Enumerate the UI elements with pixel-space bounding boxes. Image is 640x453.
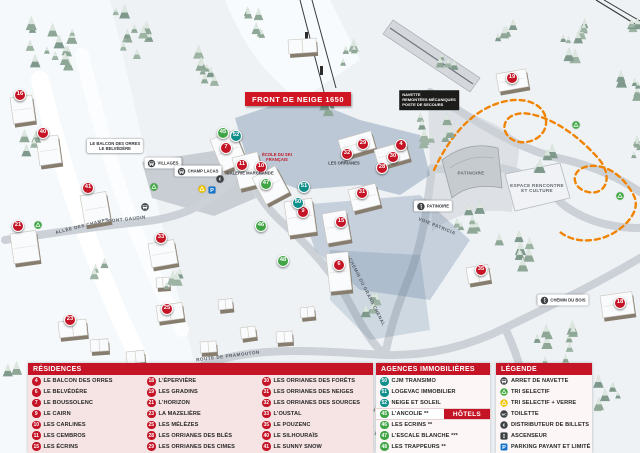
agences-hotels-panel: AGENCES IMMOBILIÈRES 50CJM TRANSIMO51LOG… (376, 363, 490, 453)
label-text: LE BALCON DES ORRESLE BELVÉDÈRE (90, 141, 140, 152)
item-label: LES MÉLÈZES (159, 422, 199, 428)
legend-item-10: 10LES CARLINES (28, 419, 143, 430)
marker-number: 41 (85, 185, 91, 191)
marker-number: 7 (224, 145, 227, 151)
map-marker-25[interactable]: 25 (161, 303, 173, 315)
item-label: LE POUZENC (274, 422, 311, 428)
item-label: TRI SELECTIF (511, 389, 550, 395)
map-marker-46[interactable]: 46 (255, 220, 267, 232)
ascenseur-icon (500, 432, 508, 440)
marker-number: 16 (17, 92, 23, 98)
navette-icon (500, 377, 508, 385)
item-label: PARKING PAYANT ET LIMITÉ (511, 444, 590, 450)
map-marker-23[interactable]: 23 (64, 314, 76, 326)
recycle-green-icon (150, 183, 158, 191)
label-text: CHAMP LACAS (188, 168, 219, 173)
marker-number: 32 (344, 151, 350, 157)
marker-number: 29 (360, 141, 366, 147)
number-badge: 9 (32, 410, 41, 419)
number-badge: 15 (32, 442, 41, 451)
item-label: LES ORRIANES DES NEIGES (274, 389, 354, 395)
label-text: CHEMIN DU BOIS (550, 297, 585, 302)
marker-number: 23 (67, 317, 73, 323)
map-label-chemin-du-bois: CHEMIN DU BOIS (537, 295, 588, 306)
marker-number: 21 (15, 223, 21, 229)
chalet-building (300, 306, 316, 321)
map-label-navette: NAVETTEREMONTÉES MÉCANIQUESPOSTE DE SECO… (399, 90, 459, 110)
map-marker-50[interactable]: 50 (292, 197, 304, 209)
map-marker-29[interactable]: 29 (357, 138, 369, 150)
marker-number: 52 (233, 133, 239, 139)
number-badge: 41 (262, 442, 271, 451)
recycle-green-icon (572, 121, 580, 129)
item-label: LES ORRIANES DES FORÊTS (274, 378, 356, 384)
map-marker-21[interactable]: 21 (12, 220, 24, 232)
marker-number: 30 (390, 154, 396, 160)
item-label: CJM TRANSIMO (392, 378, 436, 384)
number-badge: 47 (380, 431, 389, 440)
recycle-yellow-icon (198, 185, 206, 193)
item-label: LE CAIRN (44, 411, 71, 417)
legend-item-52: 52NEIGE ET SOLEIL (376, 398, 490, 409)
number-badge: 52 (380, 399, 389, 408)
number-badge: 11 (32, 431, 41, 440)
item-label: TRI SELECTIF + VERRE (511, 400, 576, 406)
recycle-green-icon (616, 192, 624, 200)
item-label: L'ESCALE BLANCHE *** (392, 433, 458, 439)
item-label: LES TRAPPEURS ** (392, 444, 446, 450)
legende-panel: LÉGENDE ARRET DE NAVETTETRI SELECTIFTRI … (496, 363, 592, 453)
legend-item-19: 19LES GRADINS (143, 387, 258, 398)
map-label-le-balcon-des-orres: LE BALCON DES ORRESLE BELVÉDÈRE (87, 139, 143, 153)
map-marker-18[interactable]: 18 (614, 297, 626, 309)
map-marker-35[interactable]: 35 (475, 264, 487, 276)
legend-item-7: 7LE BOUSSOLENC (28, 398, 143, 409)
map-marker-32[interactable]: 32 (341, 148, 353, 160)
marker-number: 10 (258, 164, 264, 170)
marker-number: 50 (295, 200, 301, 206)
marker-number: 18 (617, 300, 623, 306)
marker-number: 35 (478, 267, 484, 273)
label-text: PATINOIRE (427, 203, 449, 208)
residences-panel: RÉSIDENCES 4LE BALCON DES ORRES6LE BELVÉ… (28, 363, 373, 453)
marker-number: 51 (301, 184, 307, 190)
map-marker-52[interactable]: 52 (230, 130, 242, 142)
legend-item-18: 18L'ÉPERVIÈRE (143, 376, 258, 387)
marker-number: 15 (338, 219, 344, 225)
legend-item-41: 41LE SUNNY SNOW (258, 441, 373, 452)
legend-item-15: 15LES ÉCRINS (28, 441, 143, 452)
apartment-building (148, 239, 179, 271)
number-badge: 29 (147, 442, 156, 451)
skater-icon (417, 202, 425, 210)
bus-icon (141, 203, 149, 211)
item-label: LOGEVAC IMMOBILIER (392, 389, 456, 395)
resort-map-page: FRONT DE NEIGE 1650 16404121232533711109… (0, 0, 640, 453)
marker-number: 47 (263, 181, 269, 187)
map-label-les-orrianes: LES ORRIANES (328, 161, 359, 166)
legend-item-recycle-green: TRI SELECTIF (496, 387, 592, 398)
map-label-patinoire: PATINOIRE (414, 201, 452, 212)
map-marker-31[interactable]: 31 (356, 187, 368, 199)
legend-item-9: 9LE CAIRN (28, 409, 143, 420)
marker-number: 33 (158, 235, 164, 241)
number-badge: 33 (262, 410, 271, 419)
number-badge: 4 (32, 377, 41, 386)
marker-number: 19 (509, 75, 515, 81)
bus-icon (178, 167, 186, 175)
svg-text:P: P (210, 188, 214, 194)
apartment-building (10, 230, 41, 267)
map-marker-7[interactable]: 7 (220, 142, 232, 154)
map-label--cole-du-ski: ÉCOLE DU SKIFRANÇAIS (262, 152, 292, 162)
legend-item-50: 50CJM TRANSIMO (376, 376, 490, 387)
number-badge: 19 (147, 388, 156, 397)
map-label-champ-lacas: CHAMP LACAS (175, 166, 222, 177)
map-marker-4[interactable]: 4 (395, 139, 407, 151)
item-label: LES CARLINES (44, 422, 86, 428)
item-label: LES ECRINS ** (392, 422, 433, 428)
legend-item-29: 29LES ORRIANES DES CIMES (143, 441, 258, 452)
marker-number: 25 (164, 306, 170, 312)
map-marker-51[interactable]: 51 (298, 181, 310, 193)
label-text: ÉCOLE DU SKIFRANÇAIS (262, 152, 292, 162)
marker-number: 9 (301, 209, 304, 215)
item-label: LE BOUSSOLENC (44, 400, 93, 406)
legend-item-parking: PPARKING PAYANT ET LIMITÉ (496, 441, 592, 452)
legend-item-47: 47L'ESCALE BLANCHE *** (376, 430, 490, 441)
legend-item-45: 45L'ANCOLIE **HÔTELS (376, 409, 490, 420)
walk-icon (540, 296, 548, 304)
legend-item-35: 35LE POUZENC (258, 419, 373, 430)
number-badge: 35 (262, 421, 271, 430)
chalet-building (276, 331, 294, 347)
recycle-green-icon (34, 221, 42, 229)
number-badge: 18 (147, 377, 156, 386)
legend-item-33: 33L'OUSTAL (258, 409, 373, 420)
number-badge: 50 (380, 377, 389, 386)
legend-item-28: 28LES ORRIANES DES BLÉS (143, 430, 258, 441)
legend-item-navette: ARRET DE NAVETTE (496, 376, 592, 387)
legend-item-51: 51LOGEVAC IMMOBILIER (376, 387, 490, 398)
legende-header: LÉGENDE (496, 363, 592, 375)
legend-item-11: 11LES CEMBROS (28, 430, 143, 441)
item-label: LE BELVÉDÈRE (44, 389, 88, 395)
map-label-galerie-marchande: GALERIE MARCHANDE (226, 171, 273, 176)
label-text: PATINOIRE (457, 171, 484, 176)
number-badge: 28 (147, 431, 156, 440)
number-badge: 32 (262, 399, 271, 408)
legend-item-48: 48LES TRAPPEURS ** (376, 441, 490, 452)
legend-item-31: 31LES ORRIANES DES NEIGES (258, 387, 373, 398)
map-marker-40[interactable]: 40 (37, 127, 49, 139)
euro-icon: € (500, 421, 508, 429)
euro-icon: € (216, 175, 224, 183)
residences-list: 4LE BALCON DES ORRES6LE BELVÉDÈRE7LE BOU… (28, 375, 373, 453)
chalet-building (218, 298, 234, 313)
map-marker-45[interactable]: 45 (217, 127, 229, 139)
number-badge: 40 (262, 431, 271, 440)
toilette-icon: WC (500, 410, 508, 418)
agences-hotels-list: 50CJM TRANSIMO51LOGEVAC IMMOBILIER52NEIG… (376, 375, 490, 453)
item-label: LES ORRIANES DES BLÉS (159, 433, 233, 439)
legend-item-32: 32LES ORRIANES DES SOURCES (258, 398, 373, 409)
map-marker-41[interactable]: 41 (82, 182, 94, 194)
label-text: NAVETTEREMONTÉES MÉCANIQUESPOSTE DE SECO… (402, 92, 456, 108)
legend-item-40: 40LE SILHOURAÏS (258, 430, 373, 441)
item-label: L'HORIZON (159, 400, 190, 406)
label-text: LES ORRIANES (328, 161, 359, 166)
recycle-yellow-icon (500, 399, 508, 407)
legend-item-46: 46LES ECRINS ** (376, 419, 490, 430)
item-label: LES CEMBROS (44, 433, 86, 439)
legend-item-25: 25LES MÉLÈZES (143, 419, 258, 430)
chalet-building (288, 38, 318, 58)
parking-icon: P (500, 443, 508, 451)
item-label: L'ÉPERVIÈRE (159, 378, 197, 384)
item-label: L'ANCOLIE ** (392, 411, 429, 417)
item-label: ARRET DE NAVETTE (511, 378, 568, 384)
item-label: NEIGE ET SOLEIL (392, 400, 441, 406)
agences-header: AGENCES IMMOBILIÈRES (376, 363, 490, 375)
number-badge: 31 (262, 388, 271, 397)
marker-number: 11 (239, 162, 245, 168)
apartment-building (36, 135, 63, 170)
marker-number: 28 (379, 165, 385, 171)
item-label: ASCENSEUR (511, 433, 547, 439)
map-label-espace-rencontre: ESPACE RENCONTREET CULTURE (510, 183, 564, 193)
number-badge: 51 (380, 388, 389, 397)
marker-number: 6 (337, 262, 340, 268)
map-marker-16[interactable]: 16 (14, 89, 26, 101)
number-badge: 7 (32, 399, 41, 408)
number-badge: 23 (147, 410, 156, 419)
number-badge: 25 (147, 421, 156, 430)
legend-item-euro: €DISTRIBUTEUR DE BILLETS (496, 419, 592, 430)
map-marker-48[interactable]: 48 (277, 255, 289, 267)
map-marker-30[interactable]: 30 (387, 151, 399, 163)
marker-number: 45 (220, 130, 226, 136)
svg-text:P: P (502, 445, 506, 451)
parking-icon: P (208, 186, 216, 194)
item-label: TOILETTE (511, 411, 539, 417)
front-de-neige-banner: FRONT DE NEIGE 1650 (245, 92, 351, 106)
marker-number: 40 (40, 130, 46, 136)
number-badge: 21 (147, 399, 156, 408)
hotels-section-header: HÔTELS (444, 409, 490, 420)
map-marker-47[interactable]: 47 (260, 178, 272, 190)
bus-icon (148, 159, 156, 167)
number-badge: 30 (262, 377, 271, 386)
number-badge: 6 (32, 388, 41, 397)
label-text: GALERIE MARCHANDE (226, 171, 273, 176)
legend-item-6: 6LE BELVÉDÈRE (28, 387, 143, 398)
item-label: LES ORRIANES DES CIMES (159, 444, 235, 450)
map-marker-11[interactable]: 11 (236, 159, 248, 171)
marker-number: 48 (280, 258, 286, 264)
recycle-green-icon (500, 388, 508, 396)
marker-number: 31 (359, 190, 365, 196)
number-badge: 46 (380, 421, 389, 430)
map-marker-28[interactable]: 28 (376, 162, 388, 174)
map-marker-33[interactable]: 33 (155, 232, 167, 244)
legend-item-ascenseur: ASCENSEUR (496, 430, 592, 441)
item-label: DISTRIBUTEUR DE BILLETS (511, 422, 589, 428)
item-label: LES ÉCRINS (44, 444, 79, 450)
marker-number: 4 (399, 142, 402, 148)
item-label: LES GRADINS (159, 389, 198, 395)
item-label: L'OUSTAL (274, 411, 302, 417)
legend-item-recycle-yellow: TRI SELECTIF + VERRE (496, 398, 592, 409)
item-label: LA MAZELIÈRE (159, 411, 201, 417)
legend-item-21: 21L'HORIZON (143, 398, 258, 409)
label-text: ESPACE RENCONTREET CULTURE (510, 183, 564, 193)
map-marker-15[interactable]: 15 (335, 216, 347, 228)
legend-item-4: 4LE BALCON DES ORRES (28, 376, 143, 387)
residences-header: RÉSIDENCES (28, 363, 373, 375)
item-label: LE SUNNY SNOW (274, 444, 322, 450)
item-label: LE BALCON DES ORRES (44, 378, 113, 384)
legend-item-30: 30LES ORRIANES DES FORÊTS (258, 376, 373, 387)
chalet-building (90, 339, 110, 356)
item-label: LE SILHOURAÏS (274, 433, 319, 439)
legend-item-toilette: WCTOILETTE (496, 409, 592, 420)
number-badge: 10 (32, 421, 41, 430)
legende-list: ARRET DE NAVETTETRI SELECTIFTRI SELECTIF… (496, 375, 592, 453)
map-label-patinoire: PATINOIRE (457, 171, 484, 176)
number-badge: 48 (380, 442, 389, 451)
map-marker-19[interactable]: 19 (506, 72, 518, 84)
number-badge: 45 (380, 410, 389, 419)
item-label: LES ORRIANES DES SOURCES (274, 400, 361, 406)
marker-number: 46 (258, 223, 264, 229)
legend-item-23: 23LA MAZELIÈRE (143, 409, 258, 420)
map-marker-6[interactable]: 6 (333, 259, 345, 271)
